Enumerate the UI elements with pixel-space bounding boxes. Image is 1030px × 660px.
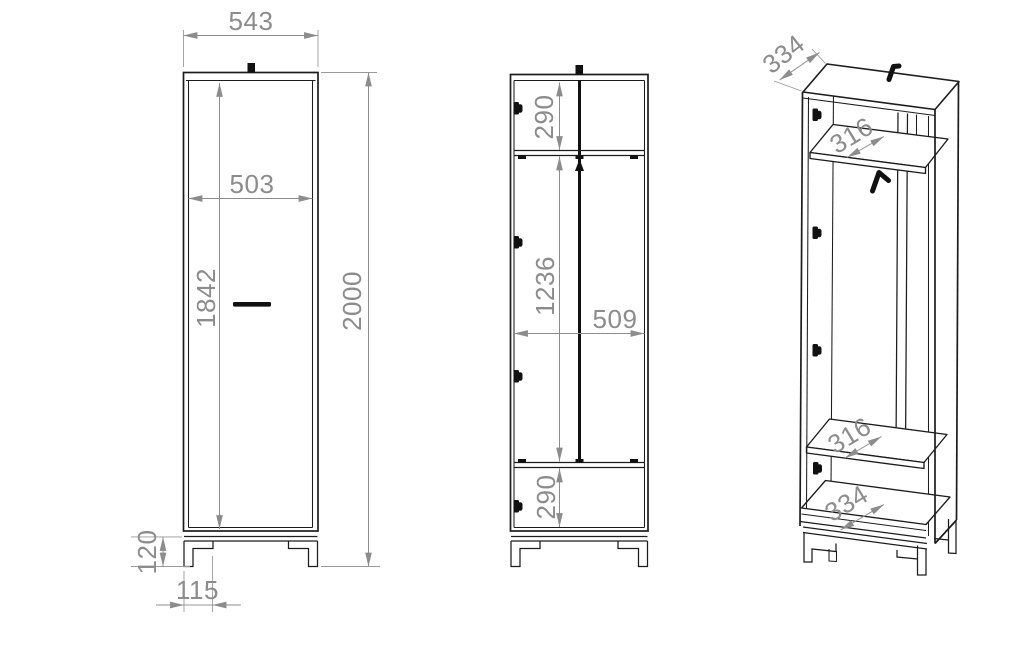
hinge-icon xyxy=(514,236,523,249)
overall-width-label: 543 xyxy=(229,6,274,36)
door-width-label: 503 xyxy=(230,169,275,199)
top-compartment-label: 290 xyxy=(529,95,559,140)
dim-overall-height: 2000 xyxy=(321,73,380,567)
shelf-bracket xyxy=(518,156,526,160)
dim-door-height: 1842 xyxy=(191,83,221,529)
dim-bottom-compartment: 290 xyxy=(531,469,561,528)
technical-drawing-page: 543 503 1842 2000 120 115 xyxy=(0,0,1030,660)
right-leg xyxy=(618,541,648,567)
top-face xyxy=(803,64,959,110)
front-right-leg xyxy=(897,546,926,576)
interior-width-label: 509 xyxy=(593,304,638,334)
shelf-bracket xyxy=(576,156,584,160)
hinge-icon xyxy=(514,102,523,115)
shelf-bracket xyxy=(630,156,638,160)
perspective-view: 334 316 316 334 xyxy=(757,28,959,575)
overall-height-label: 2000 xyxy=(337,271,367,331)
right-panel-back-edge xyxy=(957,82,959,520)
left-panel-front-edge xyxy=(800,92,803,526)
dim-top-compartment: 290 xyxy=(529,83,560,151)
dim-leg-inset: 115 xyxy=(156,556,241,612)
middle-compartment-label: 1236 xyxy=(530,256,560,316)
lower-shelf xyxy=(514,459,645,468)
base-frame xyxy=(803,519,956,575)
leg-height-label: 120 xyxy=(132,530,162,575)
coat-hook-icon xyxy=(575,159,584,182)
top-mount-bracket-icon xyxy=(576,65,584,75)
right-leg xyxy=(289,541,318,567)
hinge-icon xyxy=(514,370,523,383)
top-depth-label: 334 xyxy=(757,28,811,79)
hinge-icon xyxy=(514,500,523,513)
hinge-icon xyxy=(813,109,822,122)
hinge-icon xyxy=(813,462,822,475)
wardrobe-technical-drawing: 543 503 1842 2000 120 115 xyxy=(0,0,1030,660)
bottom-compartment-label: 290 xyxy=(531,475,561,520)
coat-hook-icon xyxy=(873,173,889,192)
dim-leg-height: 120 xyxy=(131,530,190,575)
left-leg xyxy=(184,541,213,567)
dim-middle-compartment: 1236 xyxy=(530,157,560,462)
door-height-label: 1842 xyxy=(191,268,221,328)
top-mount-bracket-icon xyxy=(248,63,256,73)
left-leg xyxy=(511,541,540,567)
shelf-bracket xyxy=(576,459,584,463)
shelf-bracket xyxy=(518,459,526,463)
leg-inset-label: 115 xyxy=(176,575,219,605)
hinge-icon xyxy=(813,344,822,357)
section-view: 290 1236 509 290 xyxy=(511,65,649,567)
base-frame xyxy=(511,537,648,567)
hanging-strip xyxy=(578,81,581,463)
shelf-bracket xyxy=(630,459,638,463)
base-frame xyxy=(184,537,318,567)
hinge-icon xyxy=(813,227,822,240)
dim-overall-width: 543 xyxy=(184,6,319,67)
door-handle xyxy=(233,302,271,307)
front-view: 543 503 1842 2000 120 115 xyxy=(131,6,380,612)
dim-door-width: 503 xyxy=(189,169,313,199)
